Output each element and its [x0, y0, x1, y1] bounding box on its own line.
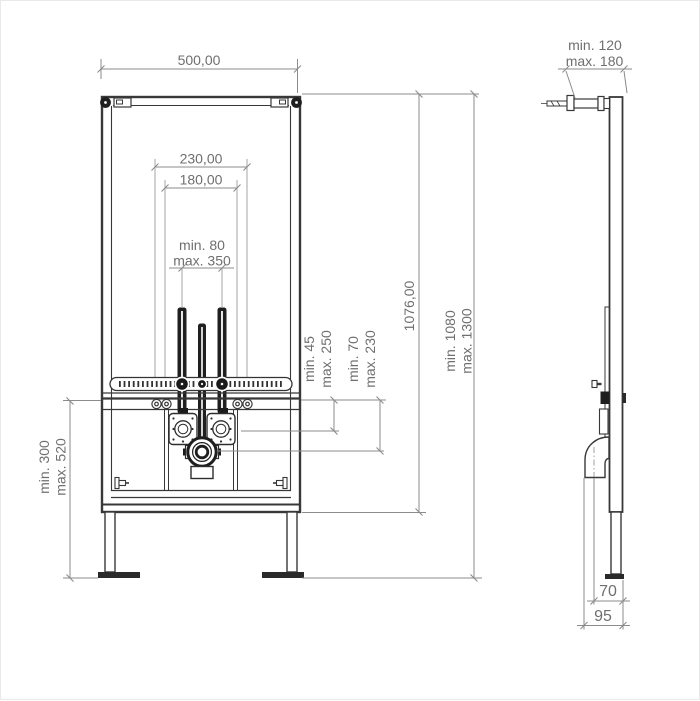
depth-total-label: 95: [594, 608, 612, 625]
foot-plate: [605, 574, 624, 579]
front-view: [98, 97, 304, 578]
rail-section: [601, 392, 610, 405]
dim-frame-height: [302, 94, 479, 513]
rod-length-min-label: min. 120: [568, 37, 622, 53]
side-view: min. 120 max. 180 70 95: [541, 37, 632, 630]
installation-frame-drawing: 500,00 230,00 180,00 min. 80 max. 350 mi…: [1, 1, 700, 701]
frame-legs: [98, 512, 304, 578]
fixing-spacing-min-label: min. 80: [179, 237, 225, 253]
frame-height-label: 1076,00: [401, 280, 417, 331]
water-connection-fitting: [183, 438, 221, 479]
rail-width-label: 230,00: [180, 151, 223, 167]
side-panel: [605, 97, 624, 579]
top-fixing-knobs: [100, 97, 302, 108]
bracket: [600, 409, 609, 434]
rail-inner-width-label: 180,00: [180, 172, 223, 188]
drain-elbow-pipe: [585, 437, 609, 478]
drain-height-min-label: min. 300: [36, 440, 52, 494]
front-dimensions: [63, 59, 482, 578]
lower-offset-min-label: min. 70: [345, 336, 361, 382]
fixing-spacing-max-label: max. 350: [173, 253, 231, 269]
upper-offset-min-label: min. 45: [301, 336, 317, 382]
foot-plate: [262, 572, 304, 578]
technical-drawing-canvas: 500,00 230,00 180,00 min. 80 max. 350 mi…: [0, 0, 700, 700]
drain-height-max-label: max. 520: [53, 438, 69, 496]
overall-width-label: 500,00: [178, 52, 221, 68]
install-height-min-label: min. 1080: [442, 310, 458, 372]
rod-length-max-label: max. 180: [566, 53, 624, 69]
install-height-max-label: max. 1300: [459, 308, 475, 374]
dim-rod-length: [558, 66, 632, 99]
foot-plate: [98, 572, 140, 578]
lower-offset-max-label: max. 230: [362, 330, 378, 388]
outlet-box: [191, 467, 213, 479]
depth-to-pipe-label: 70: [599, 583, 617, 600]
upper-offset-max-label: max. 250: [318, 330, 334, 388]
serrated-rail: [110, 377, 292, 390]
